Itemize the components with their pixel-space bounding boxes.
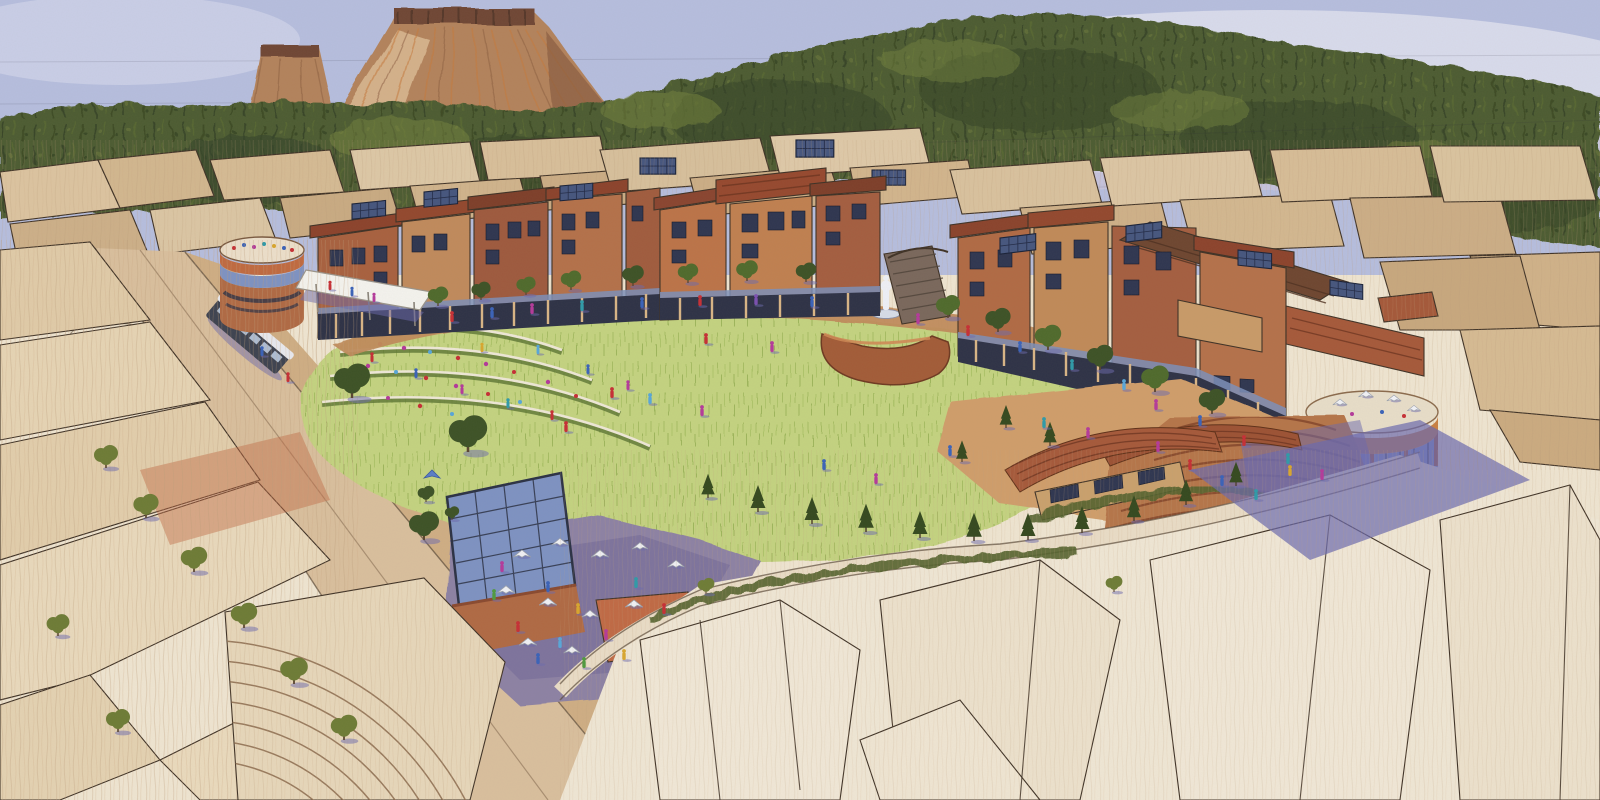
architectural-rendering [0, 0, 1600, 800]
rendering-canvas [0, 0, 1600, 800]
paper-grain-overlay [0, 0, 1600, 800]
